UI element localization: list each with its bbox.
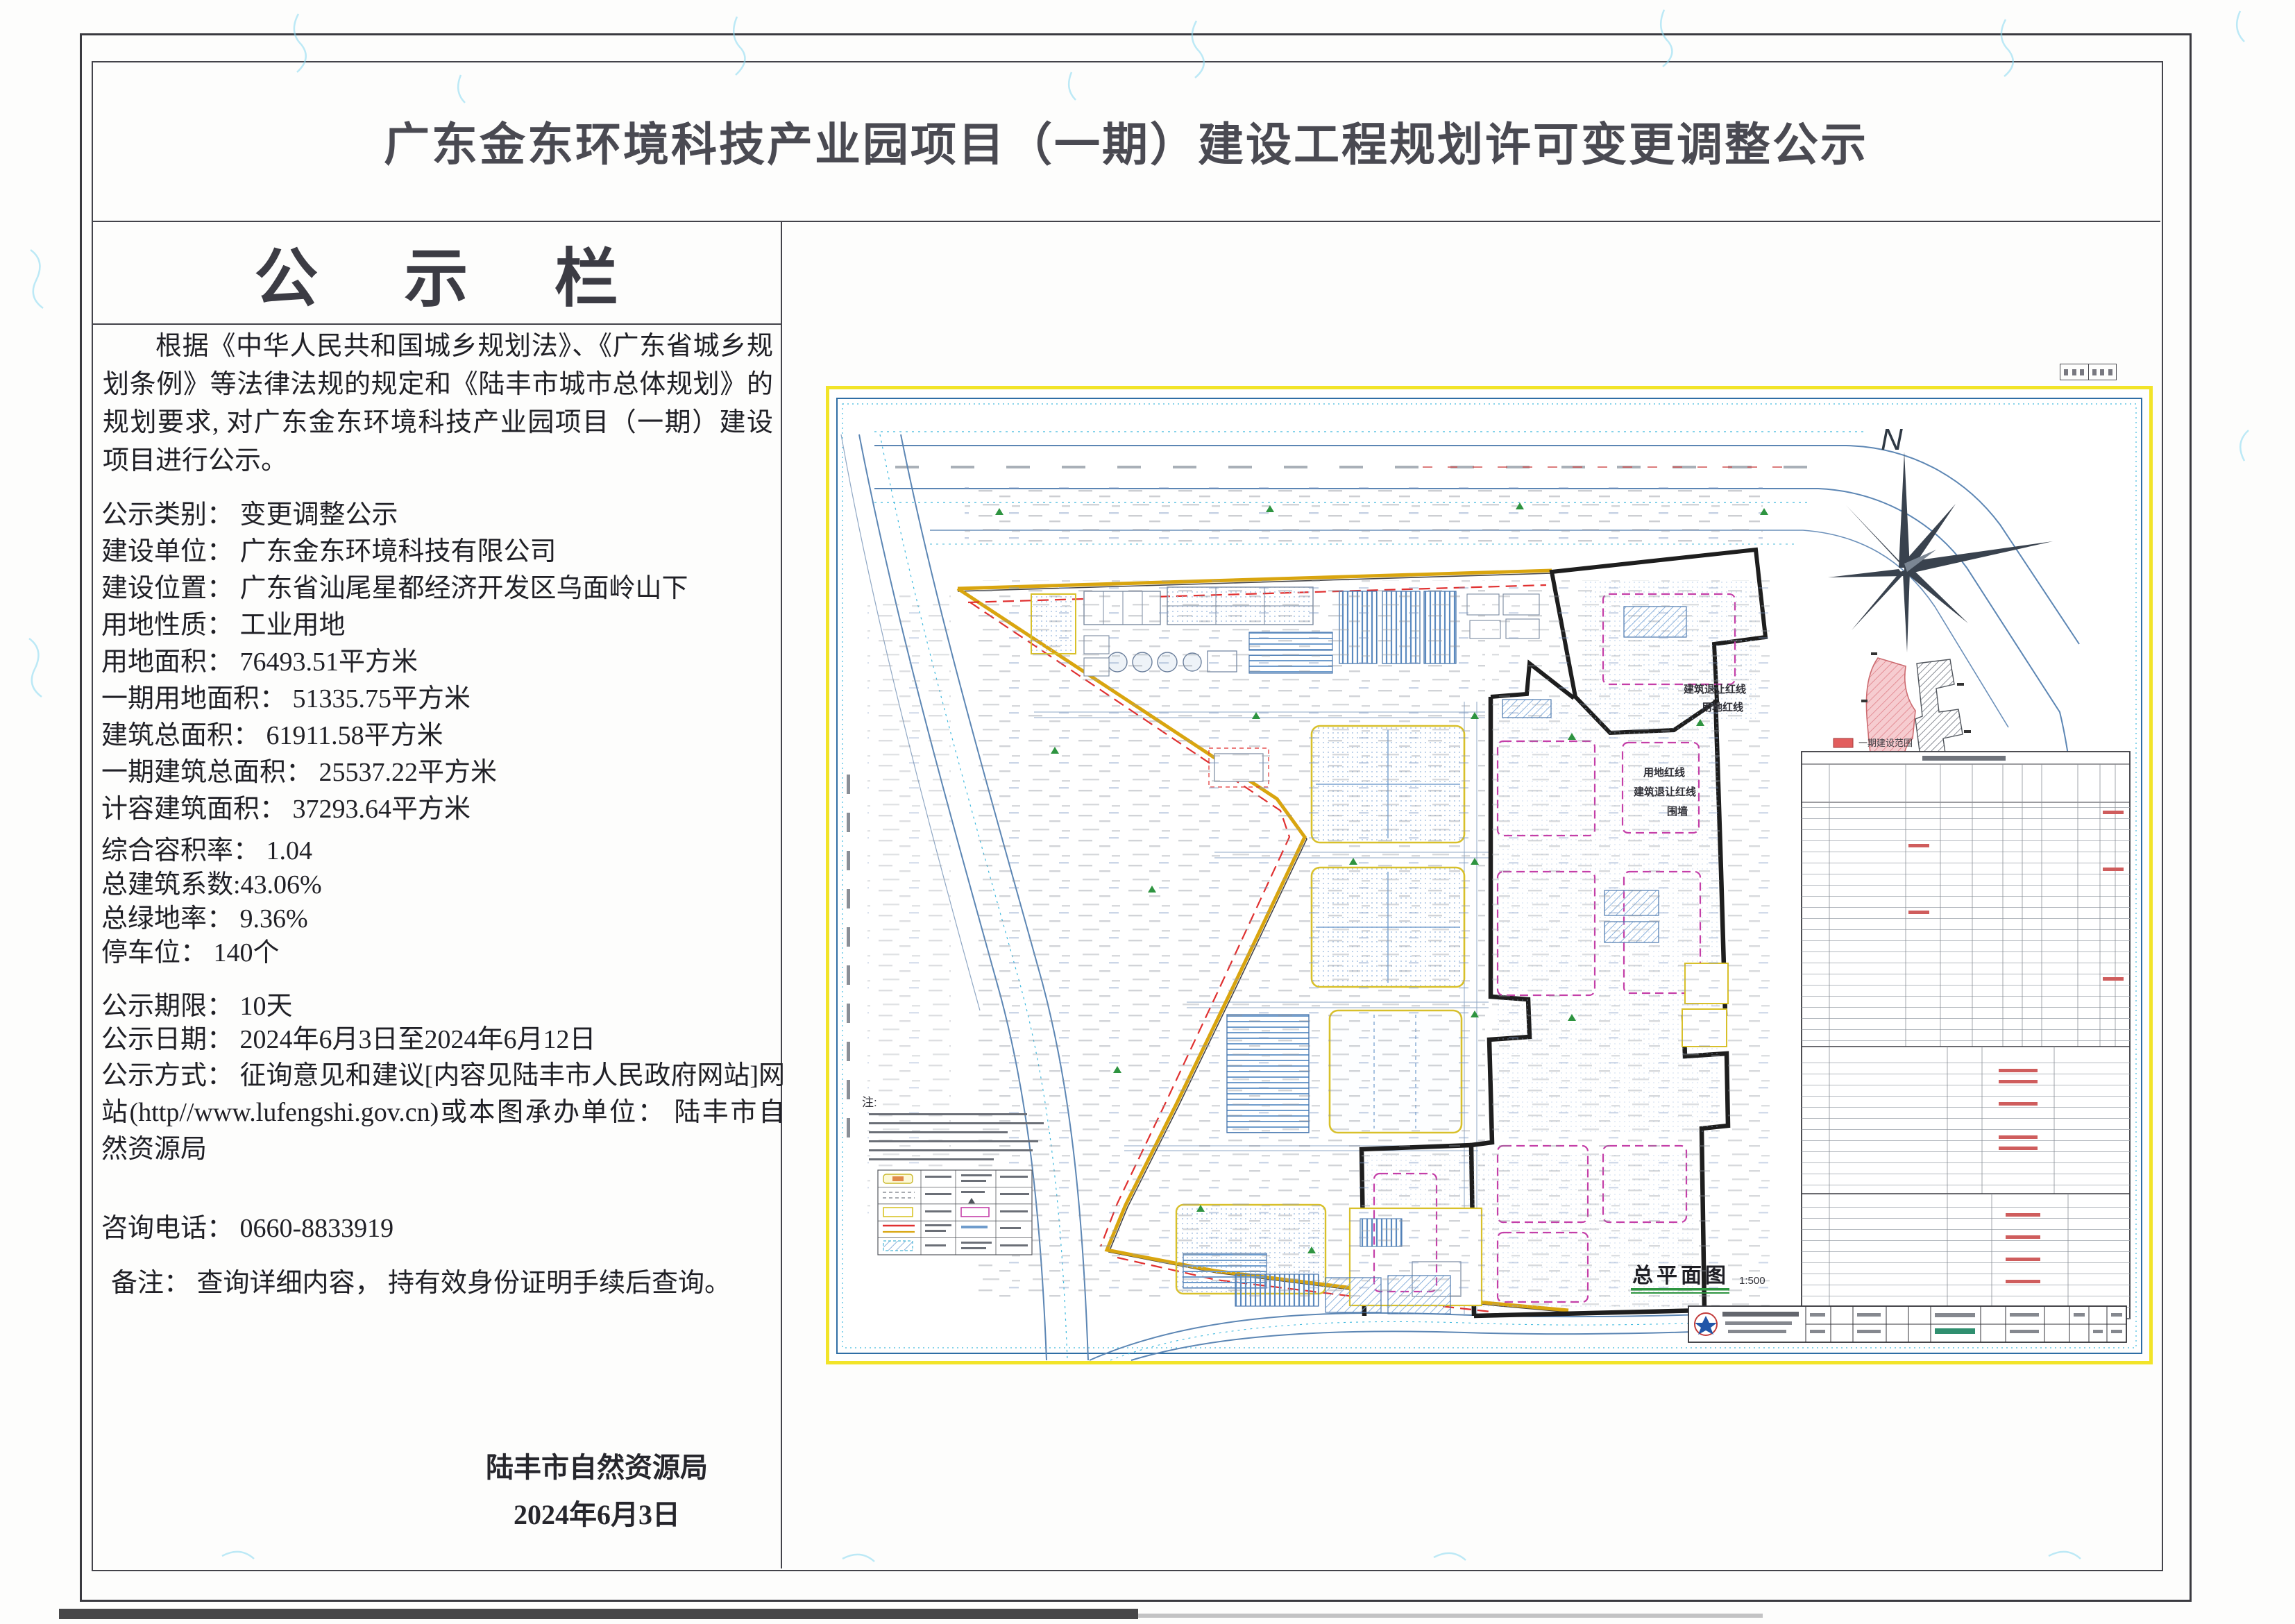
legend-label-phase1: 一期建设范围 <box>1858 738 1913 748</box>
notice-fields-b: 综合容积率： 1.04 总建筑系数:43.06% 总绿地率： 9.36% 停车位… <box>101 833 781 969</box>
sheet-stamp-boxes <box>2060 364 2117 380</box>
field-line: 建设位置： 广东省汕尾星都经济开发区乌面岭山下 <box>101 570 781 607</box>
field-line: 一期建筑总面积： 25537.22平方米 <box>101 754 781 791</box>
field-line: 公示类别： 变更调整公示 <box>101 497 781 534</box>
red-line-label: 用地红线 <box>1702 701 1743 713</box>
notice-date: 2024年6月3日 <box>451 1492 743 1532</box>
field-line: 总建筑系数:43.06% <box>101 867 781 901</box>
title-block <box>1688 1306 2126 1342</box>
setback-line-label: 建筑退让红线 <box>1684 683 1746 695</box>
field-line: 停车位： 140个 <box>101 935 781 969</box>
legend-swatch-phase1 <box>1834 738 1853 747</box>
wall-label: 围墙 <box>1667 805 1688 818</box>
notice-fields-a: 公示类别： 变更调整公示 建设单位： 广东金东环境科技有限公司 建设位置： 广东… <box>101 497 781 828</box>
field-line: 公示期限： 10天 <box>101 988 781 1022</box>
building-schedule-table <box>1802 752 2130 1319</box>
field-line: 综合容积率： 1.04 <box>101 833 781 867</box>
notice-intro: 根据《中华人民共和国城乡规划法》、《广东省城乡规划条例》等法律法规的规定和《陆丰… <box>103 328 773 480</box>
field-line: 总绿地率： 9.36% <box>101 901 781 935</box>
notice-fields-c: 公示期限： 10天 公示日期： 2024年6月3日至2024年6月12日 <box>101 988 781 1055</box>
field-line: 建筑总面积： 61911.58平方米 <box>101 718 781 754</box>
notice-heading: 公 示 栏 <box>219 227 654 319</box>
notice-signature: 陆丰市自然资源局 <box>451 1445 743 1485</box>
field-line: 一期用地面积： 51335.75平方米 <box>101 681 781 718</box>
scanner-band-light <box>1138 1614 1763 1618</box>
page-title: 广东金东环境科技产业园项目（一期）建设工程规划许可变更调整公示 <box>384 108 1868 174</box>
red-line-label: 用地红线 <box>1643 766 1685 779</box>
notes-title: 注: <box>862 1096 877 1109</box>
scanned-notice-page: 广东金东环境科技产业园项目（一期）建设工程规划许可变更调整公示 公 示 栏 根据… <box>0 0 2295 1624</box>
legend-table <box>878 1170 1032 1255</box>
plan-title: 总平面图 <box>1632 1264 1729 1287</box>
site-plan-sheet: N 一期建设范围 二期建设范围 建筑退让红线 用地红线 <box>826 386 2153 1364</box>
field-line: 计容建筑面积： 37293.64平方米 <box>101 791 781 828</box>
field-line: 建设单位： 广东金东环境科技有限公司 <box>101 534 781 570</box>
field-line: 公示日期： 2024年6月3日至2024年6月12日 <box>101 1022 781 1055</box>
plan-scale: 1:500 <box>1739 1275 1765 1287</box>
title-band: 广东金东环境科技产业园项目（一期）建设工程规划许可变更调整公示 <box>92 61 2160 222</box>
stamp-cell <box>2060 364 2089 380</box>
notice-remark-line: 备注： 查询详细内容， 持有效身份证明手续后查询。 <box>111 1264 931 1303</box>
scanner-band <box>59 1609 1138 1619</box>
north-label: N <box>1881 423 1903 457</box>
setback-line-label: 建筑退让红线 <box>1634 786 1696 798</box>
notice-phone-line: 咨询电话： 0660-8833919 <box>101 1210 781 1247</box>
stamp-cell <box>2089 364 2117 380</box>
field-line: 用地面积： 76493.51平方米 <box>101 644 781 681</box>
field-line: 用地性质： 工业用地 <box>101 607 781 644</box>
notice-heading-box: 公 示 栏 <box>92 222 781 325</box>
notice-method-line: 公示方式： 征询意见和建议[内容见陆丰市人民政府网站]网站(http//www.… <box>101 1058 785 1168</box>
